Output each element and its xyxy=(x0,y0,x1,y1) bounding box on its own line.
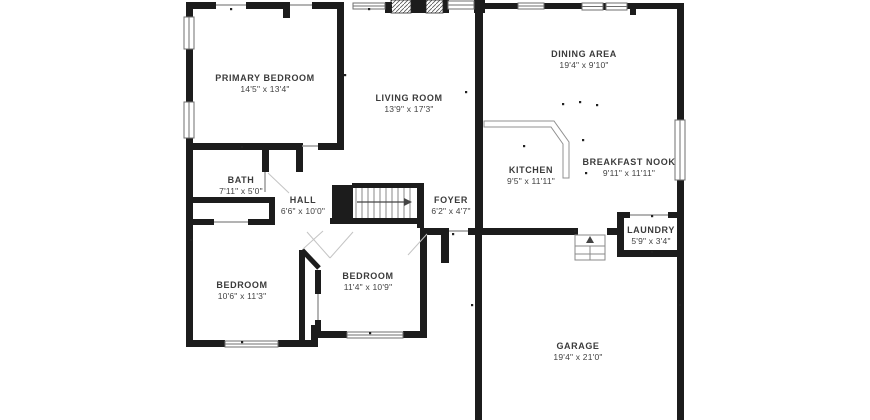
kitchen-counter xyxy=(484,121,569,178)
dimension-dots xyxy=(190,8,681,343)
floorplan-canvas: PRIMARY BEDROOM14'5" x 13'4" LIVING ROOM… xyxy=(0,0,870,420)
windows xyxy=(184,1,685,347)
floorplan-drawing xyxy=(0,0,870,420)
garage-steps xyxy=(575,235,605,260)
staircase xyxy=(356,188,410,218)
opening-lines xyxy=(214,5,668,320)
walls xyxy=(186,0,684,420)
